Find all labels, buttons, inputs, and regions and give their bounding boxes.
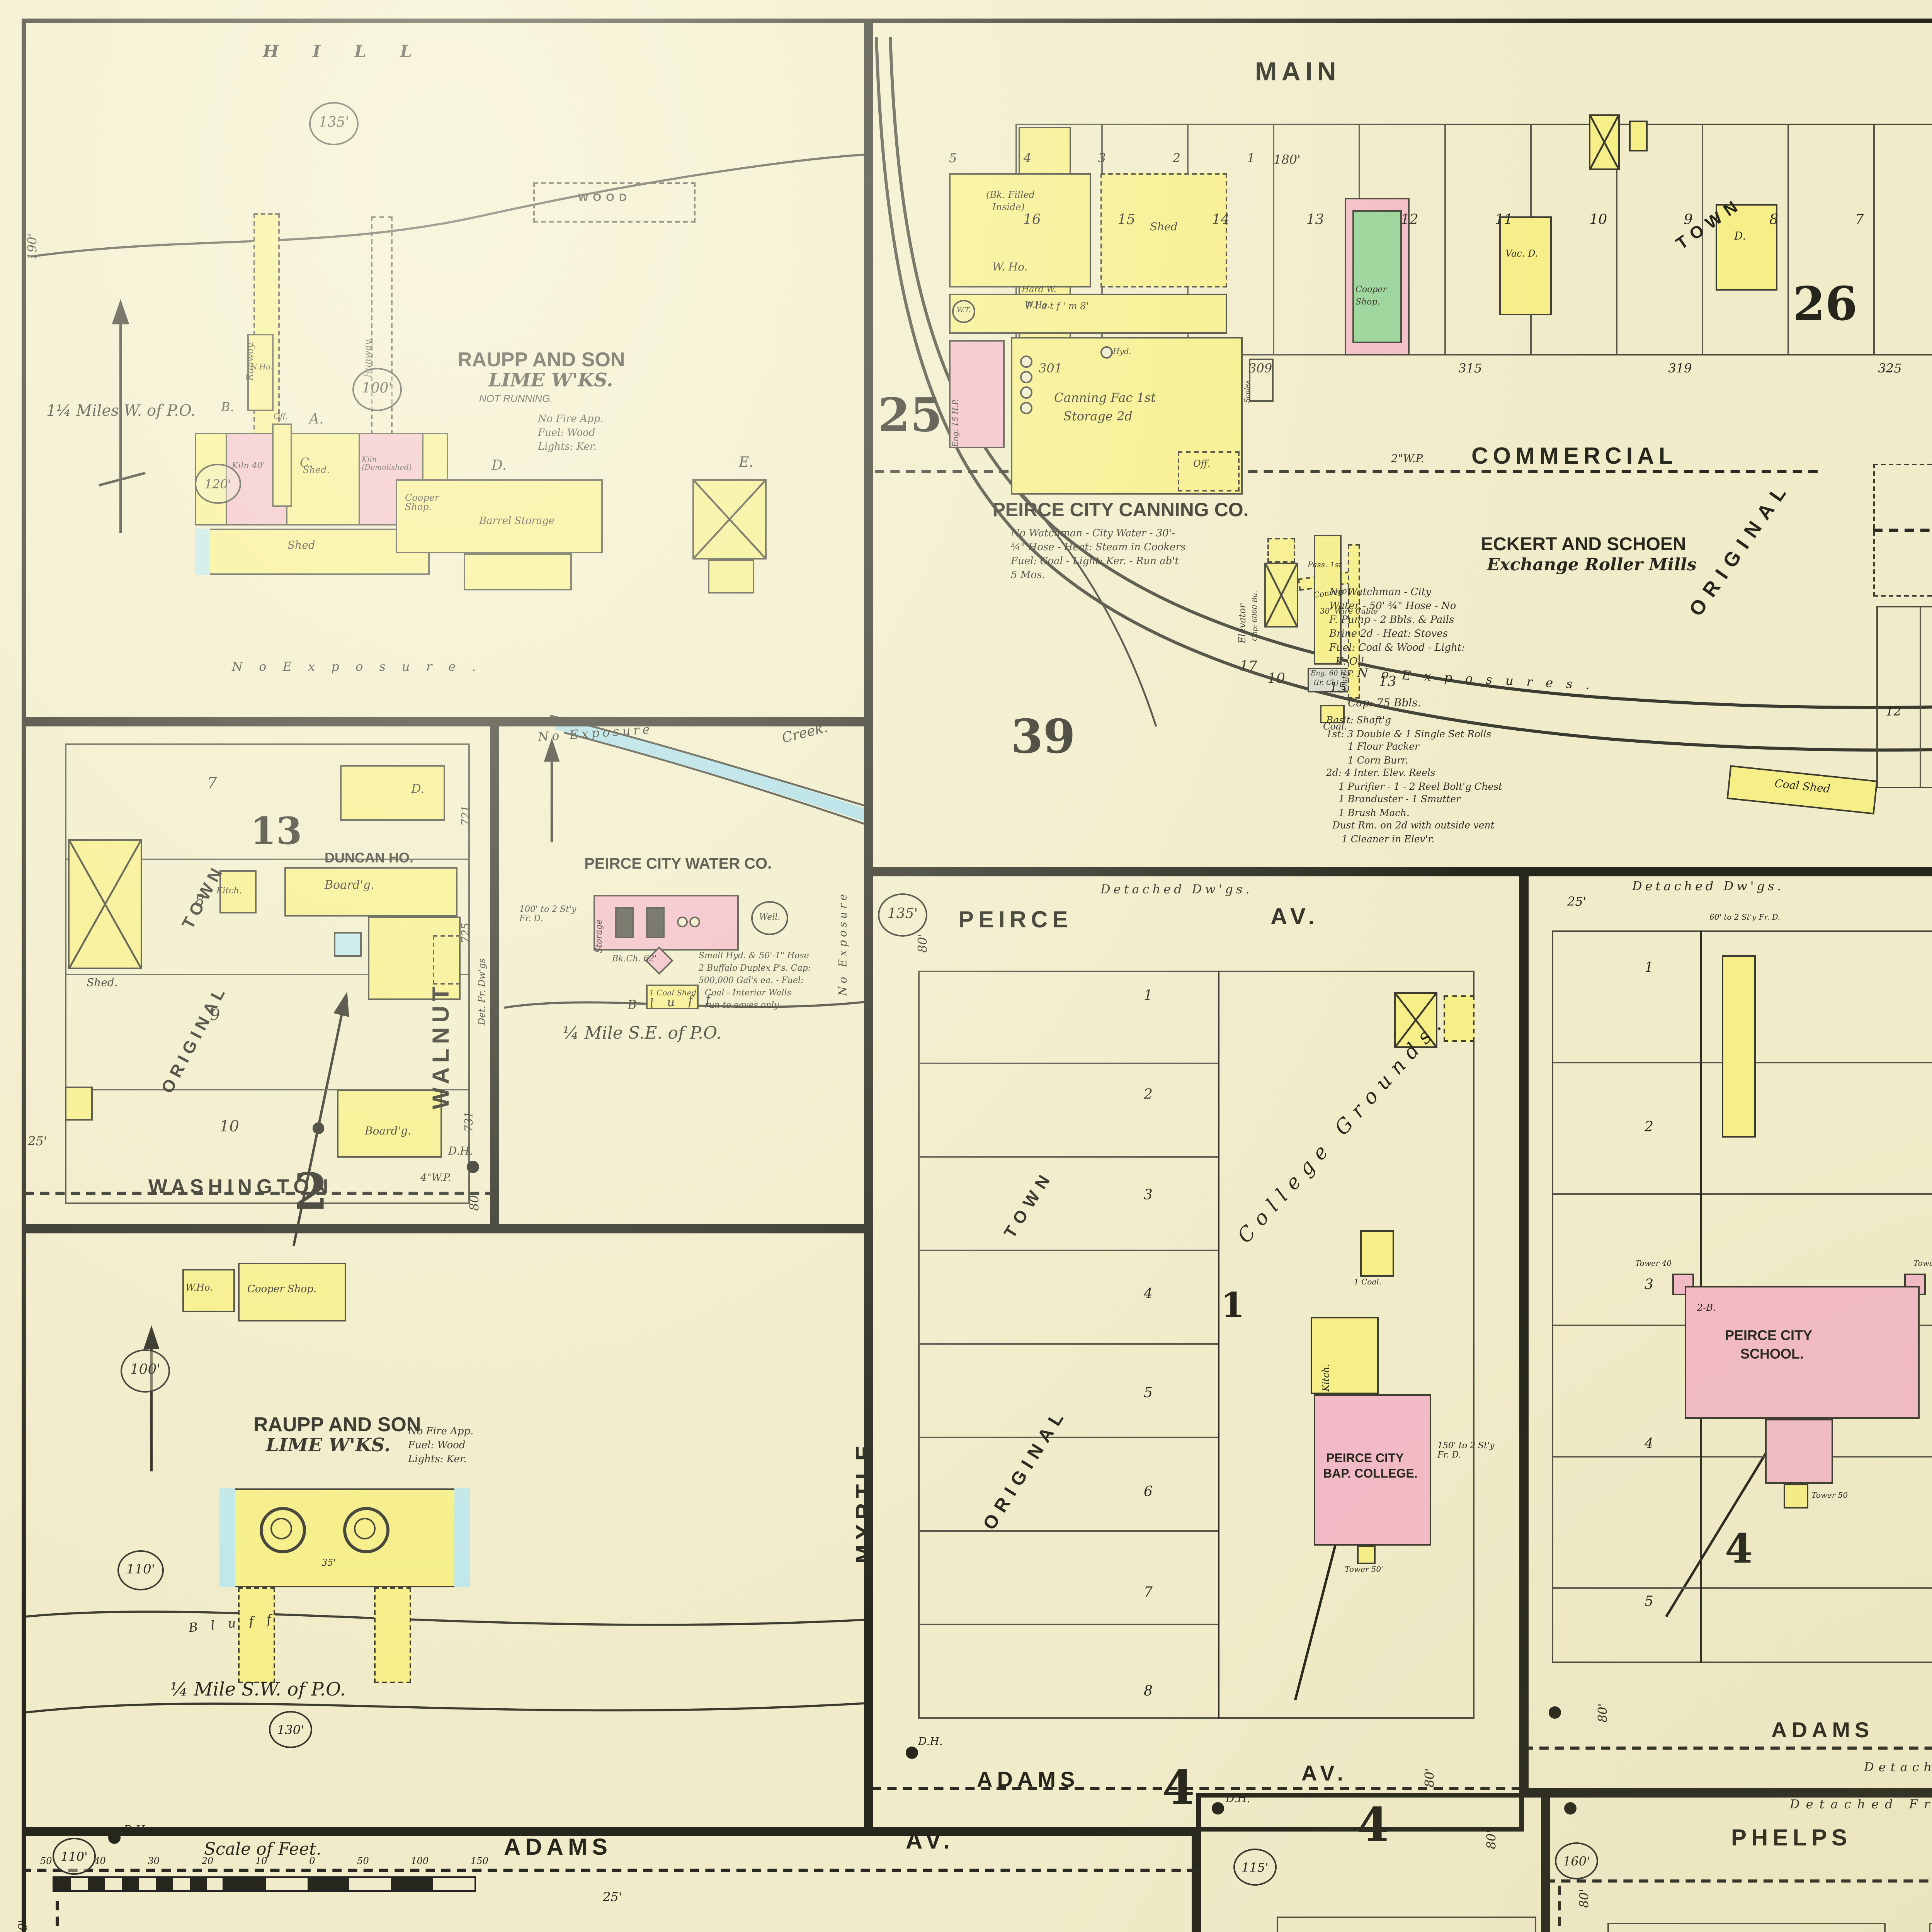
- tall-narrow-building: [1722, 955, 1756, 1138]
- dim-115: 115': [1233, 1849, 1277, 1886]
- well-circle: Well.: [751, 901, 788, 935]
- lot-number: 4: [1645, 1437, 1653, 1452]
- dwelling-13-label: D.: [411, 784, 425, 797]
- kiln-leg-1: [238, 1587, 275, 1683]
- block-16-lots: [1277, 1917, 1536, 1932]
- elevator-cap-label: Cap: 6000 Bu.: [1254, 591, 1261, 641]
- school-label-2: SCHOOL.: [1740, 1348, 1804, 1362]
- eckert-title: ECKERT AND SCHOEN: [1481, 535, 1686, 554]
- dim-35-ll: 35': [321, 1560, 336, 1569]
- lot-number: 1: [1645, 961, 1653, 977]
- canning-platform: [949, 294, 1227, 334]
- water-note-3: 500,000 Gal's ea. - Fuel:: [699, 978, 804, 987]
- ll-note-1: No Fire App.: [408, 1427, 473, 1437]
- lot-number: 1: [1144, 989, 1153, 1005]
- lot-number: 13: [1306, 213, 1324, 229]
- school-2b-label: 2-B.: [1697, 1304, 1716, 1314]
- label-b: B.: [221, 402, 234, 415]
- dim-120: 120': [195, 464, 241, 504]
- dh-label-bm: D.H.: [1226, 1794, 1250, 1806]
- lot-10: 10: [1267, 674, 1285, 689]
- label-a: A.: [309, 414, 324, 429]
- lot-number: 16: [1023, 213, 1041, 229]
- lot-number: 325: [1878, 362, 1902, 376]
- duncan-kitchen-label: Kitch.: [216, 889, 242, 898]
- barrel-annex: [464, 553, 572, 590]
- quarter-mile-sw: ¼ Mile S.W. of P.O.: [170, 1680, 346, 1699]
- lot-number: 50: [357, 1856, 369, 1867]
- lot-number: 309: [1248, 362, 1272, 376]
- street-myrtle-c: MYRTLE: [854, 1440, 878, 1564]
- storage-2d-label: Storage 2d: [1063, 411, 1133, 424]
- college-kitchen-label: Kitch.: [1323, 1364, 1332, 1391]
- lot-number: 3: [1098, 151, 1106, 165]
- kiln-blue-left: [219, 1488, 235, 1587]
- miles-w-po: 1¼ Miles W. of P.O.: [46, 405, 196, 421]
- street-adams-r: ADAMS: [1771, 1719, 1874, 1742]
- canning-fac-label: Canning Fac 1st: [1054, 393, 1156, 406]
- ll-warehouse-label: W.Ho.: [185, 1284, 213, 1294]
- lot-number: 5: [949, 151, 957, 165]
- wood-yard: [1873, 464, 1932, 597]
- dwelling-26-label: D.: [1734, 232, 1746, 243]
- street-peirce-av-c: AV.: [1270, 906, 1319, 930]
- lot-15: 15: [1329, 683, 1347, 698]
- kiln-leg-2: [374, 1587, 411, 1683]
- canning-shed-label: Shed: [1150, 223, 1178, 234]
- street-phelps: PHELPS: [1731, 1827, 1852, 1851]
- vacant-dwelling: [1499, 216, 1552, 315]
- street-commercial: COMMERCIAL: [1471, 445, 1677, 469]
- no-exposure-tl: N o E x p o s u r e .: [232, 662, 482, 675]
- block-25-lot-numbers: 54321: [949, 151, 1255, 165]
- lot-number: 1: [1247, 151, 1255, 165]
- runway-label: Runway.: [247, 341, 257, 381]
- dim-100-tl: 100': [352, 368, 402, 411]
- canning-who-label: W. Ho.: [992, 263, 1027, 274]
- raupp-title: RAUPP AND SON: [457, 349, 625, 371]
- lot-number: 12: [1401, 213, 1418, 229]
- boarding-2-label: Board'g.: [365, 1127, 411, 1138]
- detached-dwgs-r: Detached Dw'gs.: [1632, 881, 1784, 894]
- mills-note-5: Fuel: Coal & Wood - Light:: [1329, 643, 1465, 653]
- college-label-1: PEIRCE CITY: [1326, 1453, 1404, 1466]
- dim-190: 190': [27, 233, 40, 260]
- br-east-block: [1929, 1923, 1932, 1932]
- lot-number: 8: [1769, 213, 1778, 229]
- scales-label: Scales: [1246, 380, 1253, 403]
- mills-note-6: K. Oil.: [1335, 657, 1367, 667]
- cooper-label-1: Cooper: [1355, 287, 1387, 296]
- lot-number: 2: [1144, 1088, 1153, 1104]
- bkch-label: Bk.Ch. 62': [612, 957, 657, 966]
- lot-number: 4: [1024, 151, 1031, 165]
- lot-number: 100: [411, 1856, 429, 1867]
- mills-cap: Cap: 75 Bbls.: [1348, 699, 1421, 710]
- dh-dot-bl-top: [108, 1832, 121, 1844]
- lot-number: 7: [1855, 213, 1864, 229]
- lot-number: 50: [40, 1856, 52, 1867]
- street-adams-av-c: AV.: [1301, 1762, 1348, 1785]
- block-38-lot-numbers: 1211987654: [1886, 705, 1932, 719]
- crossed-building-e: [692, 479, 767, 560]
- dim-130-ll: 130': [269, 1711, 312, 1748]
- school-tower-bottom-label: Tower 50: [1811, 1493, 1848, 1501]
- lot-7: 7: [207, 777, 217, 794]
- duncan-boarding-label: Board'g.: [325, 879, 374, 892]
- block-4-number: 4: [1725, 1530, 1753, 1572]
- cooper-shop-label: Cooper Shop.: [405, 495, 461, 514]
- canning-note-2: ¾" Hose - Heat: Steam in Cookers: [1011, 543, 1185, 553]
- college-coal-label: 1 Coal.: [1354, 1280, 1381, 1288]
- canning-note-3: Fuel: Coal - Light: Ker. - Run ab't: [1011, 556, 1179, 567]
- boiler-1: [615, 907, 634, 938]
- duncan-house-title: DUNCAN HO.: [325, 852, 413, 866]
- dh-dot-mla: [467, 1161, 479, 1173]
- vacant-label: Vac. D.: [1505, 250, 1538, 260]
- lot-number: 3: [1144, 1188, 1153, 1203]
- page-2-number: 2: [294, 1167, 328, 1219]
- detached-fr-r: Detached Fr. Dw'gs: [1864, 1762, 1932, 1775]
- mills-mach-4: 1 Corn Burr.: [1348, 757, 1408, 767]
- br-west-block: [1607, 1923, 1886, 1932]
- water-note-1: Small Hyd. & 50'-1" Hose: [699, 954, 809, 963]
- street-adams-bl: ADAMS: [504, 1836, 612, 1861]
- street-adams-c: ADAMS: [977, 1768, 1079, 1791]
- mills-mach-2: 1st: 3 Double & 1 Single Set Rolls: [1326, 730, 1491, 740]
- main-street-addresses: 301309315319325327333: [1039, 362, 1932, 376]
- college-tower-label: Tower 50': [1345, 1567, 1383, 1575]
- mills-mach-6: 1 Purifier - 1 - 2 Reel Bolt'g Chest: [1338, 783, 1502, 793]
- duncan-porch: [433, 935, 461, 985]
- raupp-sw-title: RAUPP AND SON: [253, 1414, 421, 1435]
- dim-25-r: 25': [1567, 896, 1587, 910]
- label-c: C.: [300, 457, 313, 471]
- lot-number: 315: [1458, 362, 1482, 376]
- ll-note-2: Fuel: Wood: [408, 1440, 465, 1451]
- mills-note-4: Brine 2d - Heat: Stoves: [1329, 629, 1448, 639]
- canning-co-title: PEIRCE CITY CANNING CO.: [989, 501, 1252, 521]
- wood-label: WOOD: [578, 193, 631, 204]
- lot-number: 301: [1039, 362, 1062, 376]
- address-725: 725: [462, 923, 473, 944]
- barrel-storage-c-building: [272, 423, 292, 507]
- fr100-note: 100' to 2 St'y Fr. D.: [519, 907, 590, 925]
- water-pipe-2in: 2"W.P.: [1391, 454, 1424, 466]
- bk-filled-2: Inside): [992, 204, 1025, 214]
- ll-note-3: Lights: Ker.: [408, 1454, 467, 1465]
- canning-office-partition: [1178, 451, 1240, 492]
- n-ho-label: N.Ho.: [250, 365, 273, 373]
- dh-label-bl: D.H.: [124, 1825, 148, 1837]
- lot-17: 17: [1240, 662, 1257, 676]
- dh-label-c: D.H.: [918, 1737, 943, 1748]
- water-note-5: run to eaves only: [705, 1003, 779, 1012]
- building-e-annex: [708, 560, 754, 594]
- lot-number: 40: [94, 1856, 106, 1867]
- wp4-mla: 4"W.P.: [420, 1173, 451, 1184]
- lot-number: 20: [202, 1856, 214, 1867]
- page-4-mid: 4: [1357, 1802, 1389, 1851]
- water-tank: W.T.: [952, 300, 975, 323]
- raupp-note2: Fuel: Wood: [538, 428, 595, 439]
- dim-80-br: 80': [1579, 1889, 1592, 1908]
- shed-label-13: Shed.: [87, 978, 118, 990]
- duncan-blue-annex: [334, 932, 362, 957]
- small-building: [1629, 121, 1648, 151]
- shed2-label: Shed: [287, 541, 315, 552]
- mills-mach-7: 1 Branduster - 1 Smutter: [1338, 796, 1461, 806]
- hardware-label-1: Hard W.: [1022, 287, 1056, 296]
- lot-number: 150: [471, 1856, 488, 1867]
- no-exposure-mlb-vertical: No Exposure: [839, 891, 850, 996]
- water-note-4: Coal - Interior Walls: [705, 991, 791, 1000]
- block-4-lot-numbers: 12345: [1645, 961, 1653, 1611]
- scale-tick-labels: 5040302010050100150: [40, 1856, 488, 1867]
- mills-mach-5: 2d: 4 Inter. Elev. Reels: [1326, 770, 1435, 780]
- block-1-lot-lines: [918, 971, 1218, 1719]
- engine-15hp-label: Eng. 15 H.P.: [953, 399, 961, 447]
- raupp-notrunning: NOT RUNNING.: [479, 396, 553, 406]
- mills-mach-3: 1 Flour Packer: [1348, 743, 1419, 753]
- street-adams-av-bl: AV.: [906, 1830, 954, 1854]
- label-d: D.: [492, 461, 507, 475]
- lot-number: 5: [1645, 1595, 1653, 1611]
- crossed-barn-1: [1589, 114, 1620, 170]
- street-main: MAIN: [1255, 59, 1341, 86]
- raupp-sw-lime: LIME W'KS.: [266, 1436, 391, 1455]
- canning-note-4: 5 Mos.: [1011, 570, 1045, 581]
- kiln-blue-right: [454, 1488, 470, 1587]
- duncan-house-main: [284, 867, 457, 917]
- street-peirce-c: PEIRCE: [958, 909, 1072, 933]
- dim-80-bm: 80': [1486, 1830, 1499, 1849]
- platform-label: P l a t f ' m 8': [1026, 303, 1088, 313]
- block-26-number: 26: [1793, 281, 1857, 330]
- lot-number: 11: [1495, 213, 1513, 229]
- elevator-label: Elevator: [1239, 604, 1249, 643]
- mills-mach-10: 1 Cleaner in Elev'r.: [1342, 835, 1434, 845]
- shed-blue-strip: [195, 529, 210, 575]
- block-39-number: 39: [1011, 714, 1075, 763]
- lot-number: 0: [309, 1856, 315, 1867]
- detached-dwgs-c: Detached Dw'gs.: [1100, 884, 1253, 897]
- raupp-note1: No Fire App.: [538, 414, 603, 425]
- boiler-2: [646, 907, 665, 938]
- lot-number: 30: [148, 1856, 160, 1867]
- canning-office-label: Off.: [1193, 461, 1210, 470]
- lot-number: 15: [1117, 213, 1135, 229]
- dim-135-c: 135': [878, 893, 927, 937]
- block-25-number: 25: [878, 393, 942, 441]
- grain-elevator: [1264, 563, 1298, 628]
- panel-top-left: [22, 19, 869, 722]
- cooper-label-2: Shop.: [1355, 300, 1380, 309]
- detached-fr-br-top: Detached Fr. Dw'gs: [1790, 1799, 1932, 1812]
- dim-135: 135': [309, 102, 359, 145]
- dim-80-r: 80': [1597, 1703, 1611, 1723]
- dim-160: 160': [1555, 1842, 1598, 1879]
- dh-dot-c: [906, 1747, 918, 1759]
- canning-note-1: No Watchman - City Water - 30'-: [1011, 529, 1175, 539]
- lot-number: 14: [1212, 213, 1230, 229]
- label-e: E.: [739, 457, 753, 472]
- lot-number: 10: [1590, 213, 1607, 229]
- raupp-lime: LIME W'KS.: [488, 371, 613, 390]
- sanborn-map-sheet: H I L L 135' 190' Runway. Runway. A. Kil…: [0, 0, 1932, 1932]
- bk-filled-1: (Bk. Filled: [986, 192, 1035, 201]
- dim-110: 110': [117, 1550, 164, 1590]
- hydrant-label: Hyd.: [1113, 349, 1131, 357]
- block-1-number: 1: [1221, 1289, 1245, 1325]
- block-38-lots: [1876, 606, 1932, 788]
- water-note-2: 2 Buffalo Duplex P's. Cap:: [699, 966, 811, 975]
- dim-80-mla: 80': [469, 1192, 482, 1211]
- fr150-note: 150' to 2 St'y Fr. D.: [1437, 1444, 1509, 1461]
- waterworks-storage-label: Storage: [597, 919, 606, 953]
- school-tower-left-label: Tower 40: [1635, 1261, 1672, 1269]
- water-co-title: PEIRCE CITY WATER CO.: [584, 858, 772, 874]
- cooper-shop-green: [1352, 210, 1402, 343]
- lot-number: 7: [1144, 1585, 1153, 1601]
- street-walnut-a: WALNUT: [430, 982, 454, 1109]
- block-1-lot-numbers: 12345678: [1144, 989, 1153, 1700]
- wire-cable-label: 30' Wire Cable: [1320, 609, 1378, 617]
- page-4-center: 4: [1162, 1765, 1195, 1814]
- mills-title: Exchange Roller Mills: [1487, 556, 1697, 574]
- lot-number: 6: [1144, 1486, 1153, 1502]
- lot-number: 319: [1668, 362, 1692, 376]
- address-721: 721: [462, 805, 473, 826]
- college-coal-house: [1360, 1230, 1394, 1277]
- lot-13: 13: [1379, 677, 1396, 692]
- mills-mach-9: Dust Rm. on 2d with outside vent: [1332, 822, 1494, 832]
- panel-mid-left-b: [495, 722, 869, 1229]
- dh-dot-br-top: [1564, 1802, 1577, 1815]
- dh-label-mla: D.H.: [448, 1147, 473, 1158]
- panel-bottom-right: [1546, 1793, 1932, 1932]
- scale-bar-coarse: [223, 1876, 476, 1892]
- dh-dot-r1: [1549, 1706, 1561, 1719]
- school-tower-right-label: Tower 40': [1913, 1261, 1932, 1269]
- lot-number: 2: [1173, 151, 1180, 165]
- quarter-mile-se: ¼ Mile S.E. of P.O.: [563, 1025, 721, 1043]
- ll-cooper-label: Cooper Shop.: [247, 1284, 316, 1295]
- passage-label: Pass. 1st: [1308, 563, 1342, 571]
- lot-number: 4: [1144, 1287, 1153, 1303]
- street-hill: H I L L: [263, 43, 426, 61]
- school-tower-bottom: [1784, 1484, 1808, 1509]
- lot-10: 10: [219, 1121, 239, 1137]
- lot-number: 2: [1645, 1120, 1653, 1135]
- school-label-1: PEIRCE CITY: [1725, 1329, 1812, 1344]
- dim-80-c: 80': [917, 934, 930, 953]
- det-fr-dwgs-a: Det. Fr. Dw'gs: [479, 958, 488, 1025]
- scale-bar-fine: [53, 1876, 226, 1892]
- barrel-storage-label: Barrel Storage: [479, 516, 554, 527]
- dim-180: 180': [1274, 155, 1301, 168]
- college-tower: [1357, 1546, 1376, 1564]
- dh-dot-bm-top: [1212, 1802, 1224, 1815]
- lot-number: 3: [1645, 1278, 1653, 1294]
- off-label: Off.: [274, 414, 288, 422]
- boarding-house-2: [337, 1090, 442, 1158]
- fr60-note: 60' to 2 St'y Fr. D.: [1709, 915, 1802, 923]
- mill-coal-label: Coal.: [1323, 723, 1347, 733]
- college-label-2: BAP. COLLEGE.: [1323, 1468, 1418, 1481]
- dim-100-ll: 100': [121, 1349, 170, 1393]
- dim-25-bl: 25': [603, 1892, 622, 1905]
- mills-mach-8: 1 Brush Mach.: [1338, 809, 1410, 819]
- dim-80-bl: 80': [18, 1920, 31, 1932]
- lot-number: 10: [255, 1856, 267, 1867]
- small-building-13: [65, 1087, 93, 1121]
- elevator-top: [1267, 538, 1295, 563]
- address-731: 731: [465, 1111, 476, 1132]
- dwelling-13-top: [340, 765, 445, 821]
- lot-number: 12: [1886, 705, 1901, 719]
- school-rear-wing: [1765, 1419, 1833, 1484]
- kiln-label: Kiln 40': [232, 464, 265, 473]
- lot-number: 5: [1144, 1387, 1153, 1402]
- dim-25-mla: 25': [28, 1136, 47, 1149]
- dim-80-c2: 80': [1424, 1768, 1437, 1787]
- dashed-building-c: [1444, 995, 1475, 1042]
- block-13-number: 13: [250, 811, 302, 850]
- kiln-demolished-label: Kiln (Demolished): [362, 457, 423, 473]
- raupp-note3: Lights: Ker.: [538, 442, 597, 452]
- lot-number: 8: [1144, 1685, 1153, 1700]
- crossed-building-13: [68, 839, 142, 969]
